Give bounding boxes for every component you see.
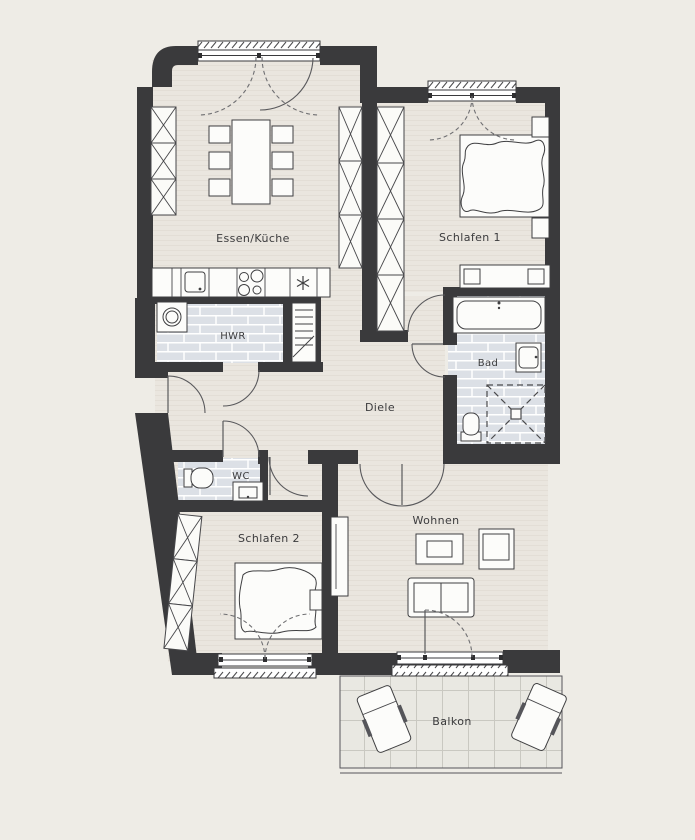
room-label-bad: Bad: [478, 358, 499, 369]
dining-table-group: [209, 120, 293, 204]
duvet: [239, 568, 316, 634]
room-label-balkon: Balkon: [432, 715, 471, 728]
wall-bottom-mid: [308, 653, 397, 675]
room-label-schlafen1: Schlafen 1: [439, 231, 501, 244]
chair: [272, 126, 293, 143]
room-label-diele: Diele: [365, 401, 395, 414]
kitchen-counter: [152, 268, 330, 297]
sideboard-symbol: [331, 517, 348, 596]
coffee-table-symbol: [416, 534, 463, 564]
washbasin-symbol: [516, 343, 541, 372]
wall-left-hwr: [135, 298, 155, 364]
wall-diele-wohnen: [308, 450, 358, 464]
chair: [209, 126, 230, 143]
wall-hwr-bottom-left: [153, 362, 223, 372]
wardrobe-kitchen-right: [339, 107, 362, 268]
room-label-wc: WC: [232, 471, 250, 482]
washbasin-wc-symbol: [233, 482, 263, 501]
kitchen-shutter-box: [198, 41, 320, 50]
wall-bad-bottom: [443, 444, 560, 464]
chair: [272, 179, 293, 196]
nightstand: [532, 218, 549, 238]
sofa-symbol: [408, 578, 474, 617]
floor-plan: Essen/Küche Schlafen 1 HWR Bad Diele WC …: [0, 0, 695, 840]
washing-machine-symbol: [157, 302, 187, 332]
wardrobe-schlafen1: [377, 107, 404, 331]
nightstand: [310, 590, 322, 610]
balcony-shutter-box: [392, 665, 508, 676]
wall-step-block: [360, 46, 377, 103]
radiator-shaft-symbol: [292, 303, 316, 362]
wall-schlafen1-door-stub: [360, 330, 408, 342]
room-label-hwr: HWR: [220, 331, 246, 342]
nightstand: [532, 117, 549, 137]
armchair-symbol: [479, 529, 514, 569]
schlafen1-shutter-box: [428, 81, 516, 90]
wall-bottom-right: [503, 650, 560, 673]
wall-bad-left-bottom: [443, 375, 457, 448]
wall-schlafen1-top-left: [377, 87, 428, 103]
room-label-essen-kueche: Essen/Küche: [216, 232, 290, 245]
room-label-wohnen: Wohnen: [412, 514, 459, 527]
floor-plan-page: Essen/Küche Schlafen 1 HWR Bad Diele WC …: [0, 0, 695, 840]
chair: [209, 179, 230, 196]
chair: [209, 152, 230, 169]
dresser: [460, 265, 550, 288]
wall-hwr-right: [283, 303, 292, 363]
chair: [272, 152, 293, 169]
wall-wc-bottom: [170, 500, 338, 512]
wall-kitchen-schlafen1: [362, 100, 377, 342]
dining-table: [232, 120, 270, 204]
wardrobe-kitchen-left: [151, 107, 176, 215]
wall-hwr-bottom-right: [258, 362, 323, 372]
schlafen2-shutter-box: [214, 668, 316, 678]
room-label-schlafen2: Schlafen 2: [238, 532, 300, 545]
wall-wc-top: [172, 450, 223, 462]
toilet-bad-symbol: [461, 413, 481, 441]
bathtub-symbol: [453, 297, 545, 333]
toilet-wc-symbol: [184, 468, 213, 488]
duvet: [461, 140, 544, 213]
